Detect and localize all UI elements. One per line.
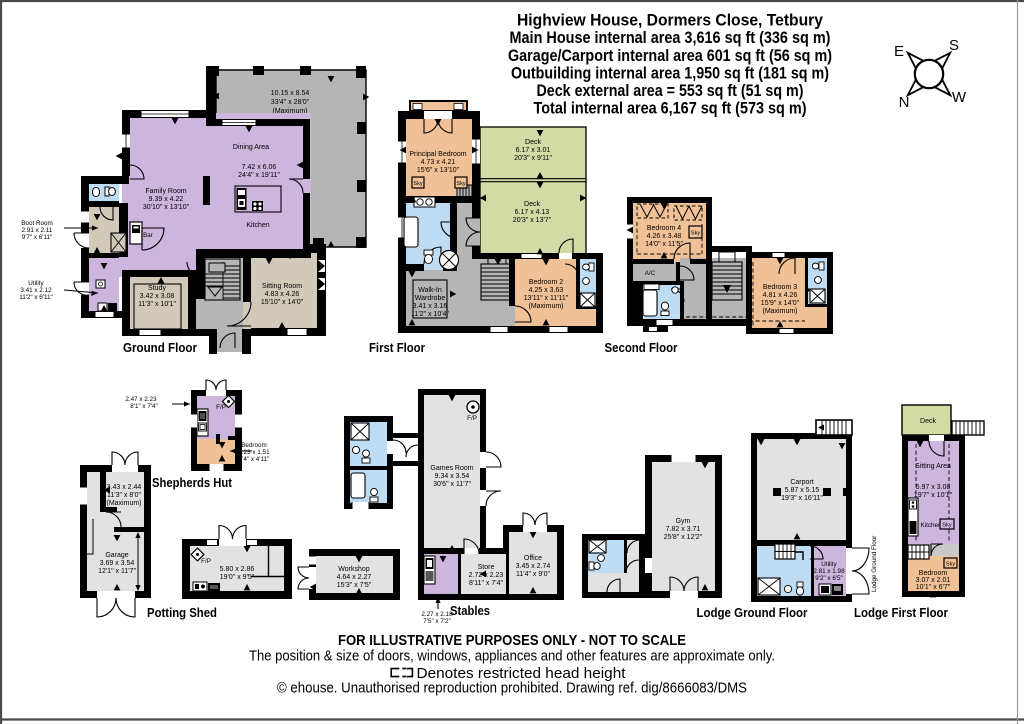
svg-text:FOR ILLUSTRATIVE PURPOSES ONLY: FOR ILLUSTRATIVE PURPOSES ONLY - NOT TO … [338, 632, 686, 649]
svg-text:Kitchen: Kitchen [246, 222, 269, 229]
svg-text:F/P: F/P [216, 404, 226, 411]
svg-text:4.81 x 4.26: 4.81 x 4.26 [763, 292, 798, 299]
svg-text:Deck: Deck [525, 139, 541, 146]
svg-text:Sitting Room: Sitting Room [262, 283, 302, 290]
svg-text:2.72 x 2.23: 2.72 x 2.23 [469, 572, 504, 579]
svg-text:Bar: Bar [143, 232, 153, 239]
svg-text:25'8" x 12'2": 25'8" x 12'2" [664, 534, 703, 541]
svg-text:3.41 x 3.16: 3.41 x 3.16 [413, 303, 448, 310]
svg-text:Sitting Area: Sitting Area [915, 463, 951, 470]
svg-text:Principal Bedroom: Principal Bedroom [409, 151, 466, 158]
svg-text:20'3" x 13'7": 20'3" x 13'7" [513, 217, 552, 224]
svg-text:Study: Study [148, 285, 166, 292]
svg-text:Utility: Utility [821, 561, 837, 568]
svg-text:Sky: Sky [456, 181, 465, 187]
svg-text:2.81 x 1.98: 2.81 x 1.98 [813, 568, 845, 575]
svg-text:Outbuilding internal area 1,95: Outbuilding internal area 1,950 sq ft (1… [511, 63, 829, 82]
svg-text:Lodge First Floor: Lodge First Floor [854, 605, 948, 620]
svg-text:3.42 x 3.08: 3.42 x 3.08 [140, 293, 175, 300]
svg-text:5.87 x 5.15: 5.87 x 5.15 [785, 487, 820, 494]
svg-text:Bedroom: Bedroom [919, 570, 948, 577]
svg-text:Family Room: Family Room [145, 188, 186, 195]
svg-text:11'2" x 6'11": 11'2" x 6'11" [19, 294, 53, 301]
svg-text:30'6" x 11'7": 30'6" x 11'7" [433, 481, 471, 488]
svg-text:9'7" x 6'11": 9'7" x 6'11" [22, 234, 53, 241]
svg-text:Games Room: Games Room [430, 465, 473, 472]
svg-text:9'2" x 6'5": 9'2" x 6'5" [815, 575, 843, 582]
svg-text:8'1" x 7'4": 8'1" x 7'4" [130, 403, 158, 410]
svg-text:W: W [952, 89, 967, 106]
svg-text:Carport: Carport [790, 479, 813, 486]
svg-text:Ground Floor: Ground Floor [123, 340, 197, 355]
svg-text:15'10" x 14'0": 15'10" x 14'0" [261, 299, 304, 306]
svg-text:3.43 x 2.44: 3.43 x 2.44 [107, 484, 142, 491]
svg-text:5.80 x 2.86: 5.80 x 2.86 [220, 566, 255, 573]
svg-text:First Floor: First Floor [369, 340, 425, 355]
svg-text:Boot Room: Boot Room [21, 220, 53, 227]
svg-text:F/P: F/P [467, 415, 477, 422]
svg-text:24'4" x 19'11": 24'4" x 19'11" [238, 172, 280, 179]
svg-text:Workshop: Workshop [338, 566, 369, 573]
svg-text:E: E [894, 43, 904, 60]
svg-text:© ehouse. Unauthorised reprodu: © ehouse. Unauthorised reproduction proh… [277, 680, 747, 697]
svg-text:Shepherds Hut: Shepherds Hut [152, 475, 233, 490]
svg-text:5.97 x 3.08: 5.97 x 3.08 [916, 484, 951, 491]
svg-text:15'6" x 13'10": 15'6" x 13'10" [417, 167, 460, 174]
svg-text:6.17 x 4.13: 6.17 x 4.13 [515, 209, 550, 216]
svg-text:20'3" x 9'11": 20'3" x 9'11" [514, 155, 552, 162]
svg-text:11'3" x 8'0": 11'3" x 8'0" [107, 492, 141, 499]
svg-text:11'3" x 10'1": 11'3" x 10'1" [138, 301, 176, 308]
svg-text:Sky: Sky [942, 523, 951, 529]
svg-text:Total internal area 6,167 sq f: Total internal area 6,167 sq ft (573 sq … [534, 99, 807, 118]
svg-text:4.83 x 4.26: 4.83 x 4.26 [265, 291, 300, 298]
svg-text:12'1" x 11'7": 12'1" x 11'7" [98, 568, 136, 575]
svg-text:2.91 x 2.11: 2.91 x 2.11 [22, 227, 53, 234]
svg-text:Wardrobe: Wardrobe [415, 295, 446, 302]
svg-text:Stables: Stables [450, 603, 490, 618]
svg-text:19'3" x 16'11": 19'3" x 16'11" [781, 495, 823, 502]
svg-text:Bedroom 2: Bedroom 2 [529, 279, 563, 286]
svg-text:Bedroom 4: Bedroom 4 [647, 225, 681, 232]
svg-text:11'4" x 9'0": 11'4" x 9'0" [516, 571, 550, 578]
svg-text:Garage: Garage [105, 552, 128, 559]
svg-text:Lodge Ground Floor: Lodge Ground Floor [871, 536, 878, 592]
svg-text:3.69 x 3.54: 3.69 x 3.54 [100, 560, 135, 567]
svg-text:7'5" x 7'2": 7'5" x 7'2" [423, 618, 451, 625]
svg-text:33'4" x 28'0": 33'4" x 28'0" [271, 99, 310, 106]
svg-text:Store: Store [478, 564, 495, 571]
svg-text:7.42 x 6.06: 7.42 x 6.06 [242, 164, 277, 171]
svg-text:Deck: Deck [920, 418, 936, 425]
svg-text:Lodge Ground Floor: Lodge Ground Floor [697, 605, 808, 620]
svg-text:15'9" x 14'0": 15'9" x 14'0" [761, 300, 800, 307]
svg-text:4.73 x 4.21: 4.73 x 4.21 [421, 159, 456, 166]
svg-text:Sky: Sky [691, 231, 700, 237]
svg-text:4.64 x 2.27: 4.64 x 2.27 [337, 574, 372, 581]
svg-text:A/C: A/C [645, 270, 656, 277]
svg-text:6.17 x 3.01: 6.17 x 3.01 [516, 147, 551, 154]
svg-text:N: N [899, 94, 910, 111]
svg-text:30'10" x 13'10": 30'10" x 13'10" [143, 204, 190, 211]
svg-text:Kitchen: Kitchen [920, 522, 942, 529]
svg-text:9.34 x 3.54: 9.34 x 3.54 [435, 473, 470, 480]
svg-text:10.15 x 8.54: 10.15 x 8.54 [271, 90, 310, 97]
svg-text:(Maximum): (Maximum) [529, 303, 564, 310]
svg-text:4.25 x 3.63: 4.25 x 3.63 [529, 287, 564, 294]
svg-text:Office: Office [524, 555, 542, 562]
svg-text:Main House internal area 3,616: Main House internal area 3,616 sq ft (33… [510, 28, 831, 47]
svg-text:S: S [949, 37, 959, 54]
svg-text:Gym: Gym [676, 518, 691, 525]
svg-text:8'11" x 7'4": 8'11" x 7'4" [469, 580, 503, 587]
svg-text:Sky: Sky [413, 181, 422, 187]
svg-text:(Maximum): (Maximum) [763, 308, 798, 315]
svg-text:The position & size of doors,: The position & size of doors, windows, a… [249, 648, 775, 665]
svg-text:Sky: Sky [946, 562, 955, 568]
svg-text:(Maximum): (Maximum) [107, 500, 142, 507]
svg-text:14'0" x 11'5": 14'0" x 11'5" [645, 241, 683, 248]
svg-text:Deck: Deck [524, 201, 540, 208]
svg-text:Walk-In: Walk-In [418, 287, 442, 294]
svg-text:19'7" x 10'1": 19'7" x 10'1" [914, 492, 953, 499]
svg-text:Highview House, Dormers Close,: Highview House, Dormers Close, Tetbury [517, 11, 823, 30]
svg-text:Second Floor: Second Floor [605, 340, 678, 355]
svg-text:10'1" x 6'7": 10'1" x 6'7" [916, 584, 951, 591]
svg-text:15'3" x 7'5": 15'3" x 7'5" [337, 582, 372, 589]
svg-text:3.41 x 2.12: 3.41 x 2.12 [20, 287, 52, 294]
svg-text:F/P: F/P [201, 558, 211, 565]
svg-text:3.45 x 2.74: 3.45 x 2.74 [516, 563, 551, 570]
svg-text:2.27 x 2.18: 2.27 x 2.18 [421, 611, 453, 618]
svg-text:Bedroom 3: Bedroom 3 [763, 284, 797, 291]
svg-text:2.47 x 2.23: 2.47 x 2.23 [125, 396, 157, 403]
svg-text:3.07 x 2.01: 3.07 x 2.01 [916, 577, 951, 584]
svg-text:4.26 x 3.48: 4.26 x 3.48 [647, 233, 682, 240]
svg-text:Deck external area = 553 sq ft: Deck external area = 553 sq ft (51 sq m) [537, 81, 804, 100]
svg-text:11'2" x 10'4": 11'2" x 10'4" [411, 311, 449, 318]
svg-text:Garage/Carport internal area 6: Garage/Carport internal area 601 sq ft (… [508, 46, 832, 65]
svg-text:7'4" x 4'11": 7'4" x 4'11" [239, 456, 270, 463]
svg-text:19'0" x 9'5": 19'0" x 9'5" [220, 574, 255, 581]
svg-text:Dining Area: Dining Area [233, 144, 269, 151]
svg-text:9.39 x 4.22: 9.39 x 4.22 [149, 196, 184, 203]
svg-text:Potting Shed: Potting Shed [147, 605, 217, 620]
svg-text:Utility: Utility [28, 280, 44, 287]
svg-text:Bedroom: Bedroom [241, 442, 267, 449]
svg-text:7.82 x 3.71: 7.82 x 3.71 [666, 526, 701, 533]
svg-text:13'11" x 11'11": 13'11" x 11'11" [524, 295, 569, 302]
svg-text:2.23 x 1.51: 2.23 x 1.51 [238, 449, 270, 456]
